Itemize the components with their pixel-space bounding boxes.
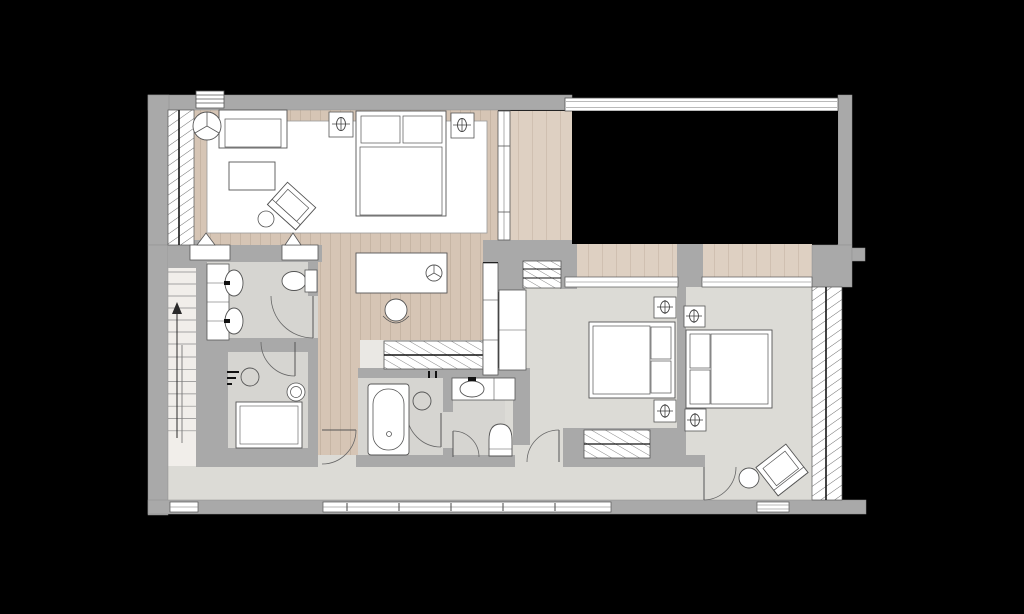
chimney-vent [196,91,224,108]
sliding-door-1 [190,245,230,260]
sink-wc [460,381,484,397]
faucet-master-2 [224,319,230,323]
deck-covered [510,111,572,241]
side-table-bedroom2 [739,468,759,488]
closet-rack-bedroom1 [523,261,561,288]
wall-wc-bedroom1 [513,368,530,445]
wall-right-top [838,95,852,245]
coffee-table [229,162,275,190]
wall-insulation-right [812,287,842,500]
master-bed [356,111,446,216]
wall-left-top [148,95,169,245]
toilet-master-bowl [282,272,306,291]
wall-left [148,245,168,515]
wall-wc-niche [481,455,515,467]
deck-bedroom1 [565,244,678,277]
armchair-side-table [258,211,274,227]
bathtub [368,384,409,455]
wall-b2-door [677,455,705,467]
bed-bedroom2 [686,330,772,408]
floor-plan-svg [0,0,1024,614]
wall-shower-left [202,352,228,456]
floor-plan-stage [0,0,1024,614]
sliding-door-2 [282,245,318,260]
terrace-void [572,111,838,244]
toilet-wc [489,424,512,456]
wall-shower-bottom [196,448,310,467]
faucet-master-1 [224,281,230,285]
bed-bedroom1 [589,322,675,398]
desk-chair [385,299,407,321]
bath2-door-gap [443,412,453,448]
wall-bath-right [308,262,318,467]
cabinet-hall [483,263,498,375]
wall-b1-top-band [483,240,577,262]
shower-tray [236,402,302,448]
floor-plan-shapes [148,91,866,515]
sofa [219,110,287,148]
faucet-wc [468,377,476,381]
window-south-c [757,502,789,512]
wall-bath2-bottom [356,455,481,467]
shower-drain-ring [287,383,305,401]
wall-deck-pillar [677,240,703,287]
floor-wood-hall-lower [318,343,360,467]
wall-b1-entry [498,262,525,292]
deck-bedroom2 [702,244,812,277]
toilet-master-tank [305,270,317,292]
terrace-railing [565,98,838,111]
wall-right-stub [852,248,865,261]
wall-insulation-left [168,110,194,245]
wall-right-block [812,245,852,287]
